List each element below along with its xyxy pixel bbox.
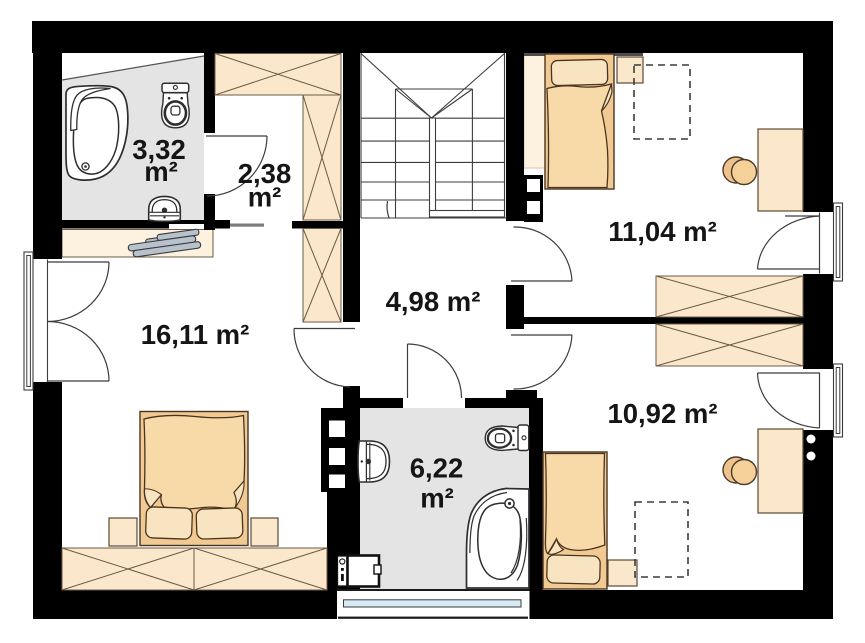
svg-text:16,11 m²: 16,11 m² — [141, 319, 250, 350]
svg-text:10,92 m²: 10,92 m² — [607, 398, 717, 429]
svg-text:11,04 m²: 11,04 m² — [608, 216, 717, 247]
svg-text:m²: m² — [248, 182, 282, 213]
svg-text:m²: m² — [420, 483, 454, 514]
svg-text:4,98 m²: 4,98 m² — [386, 286, 481, 317]
svg-text:m²: m² — [144, 156, 178, 187]
svg-text:6,22: 6,22 — [410, 453, 464, 484]
